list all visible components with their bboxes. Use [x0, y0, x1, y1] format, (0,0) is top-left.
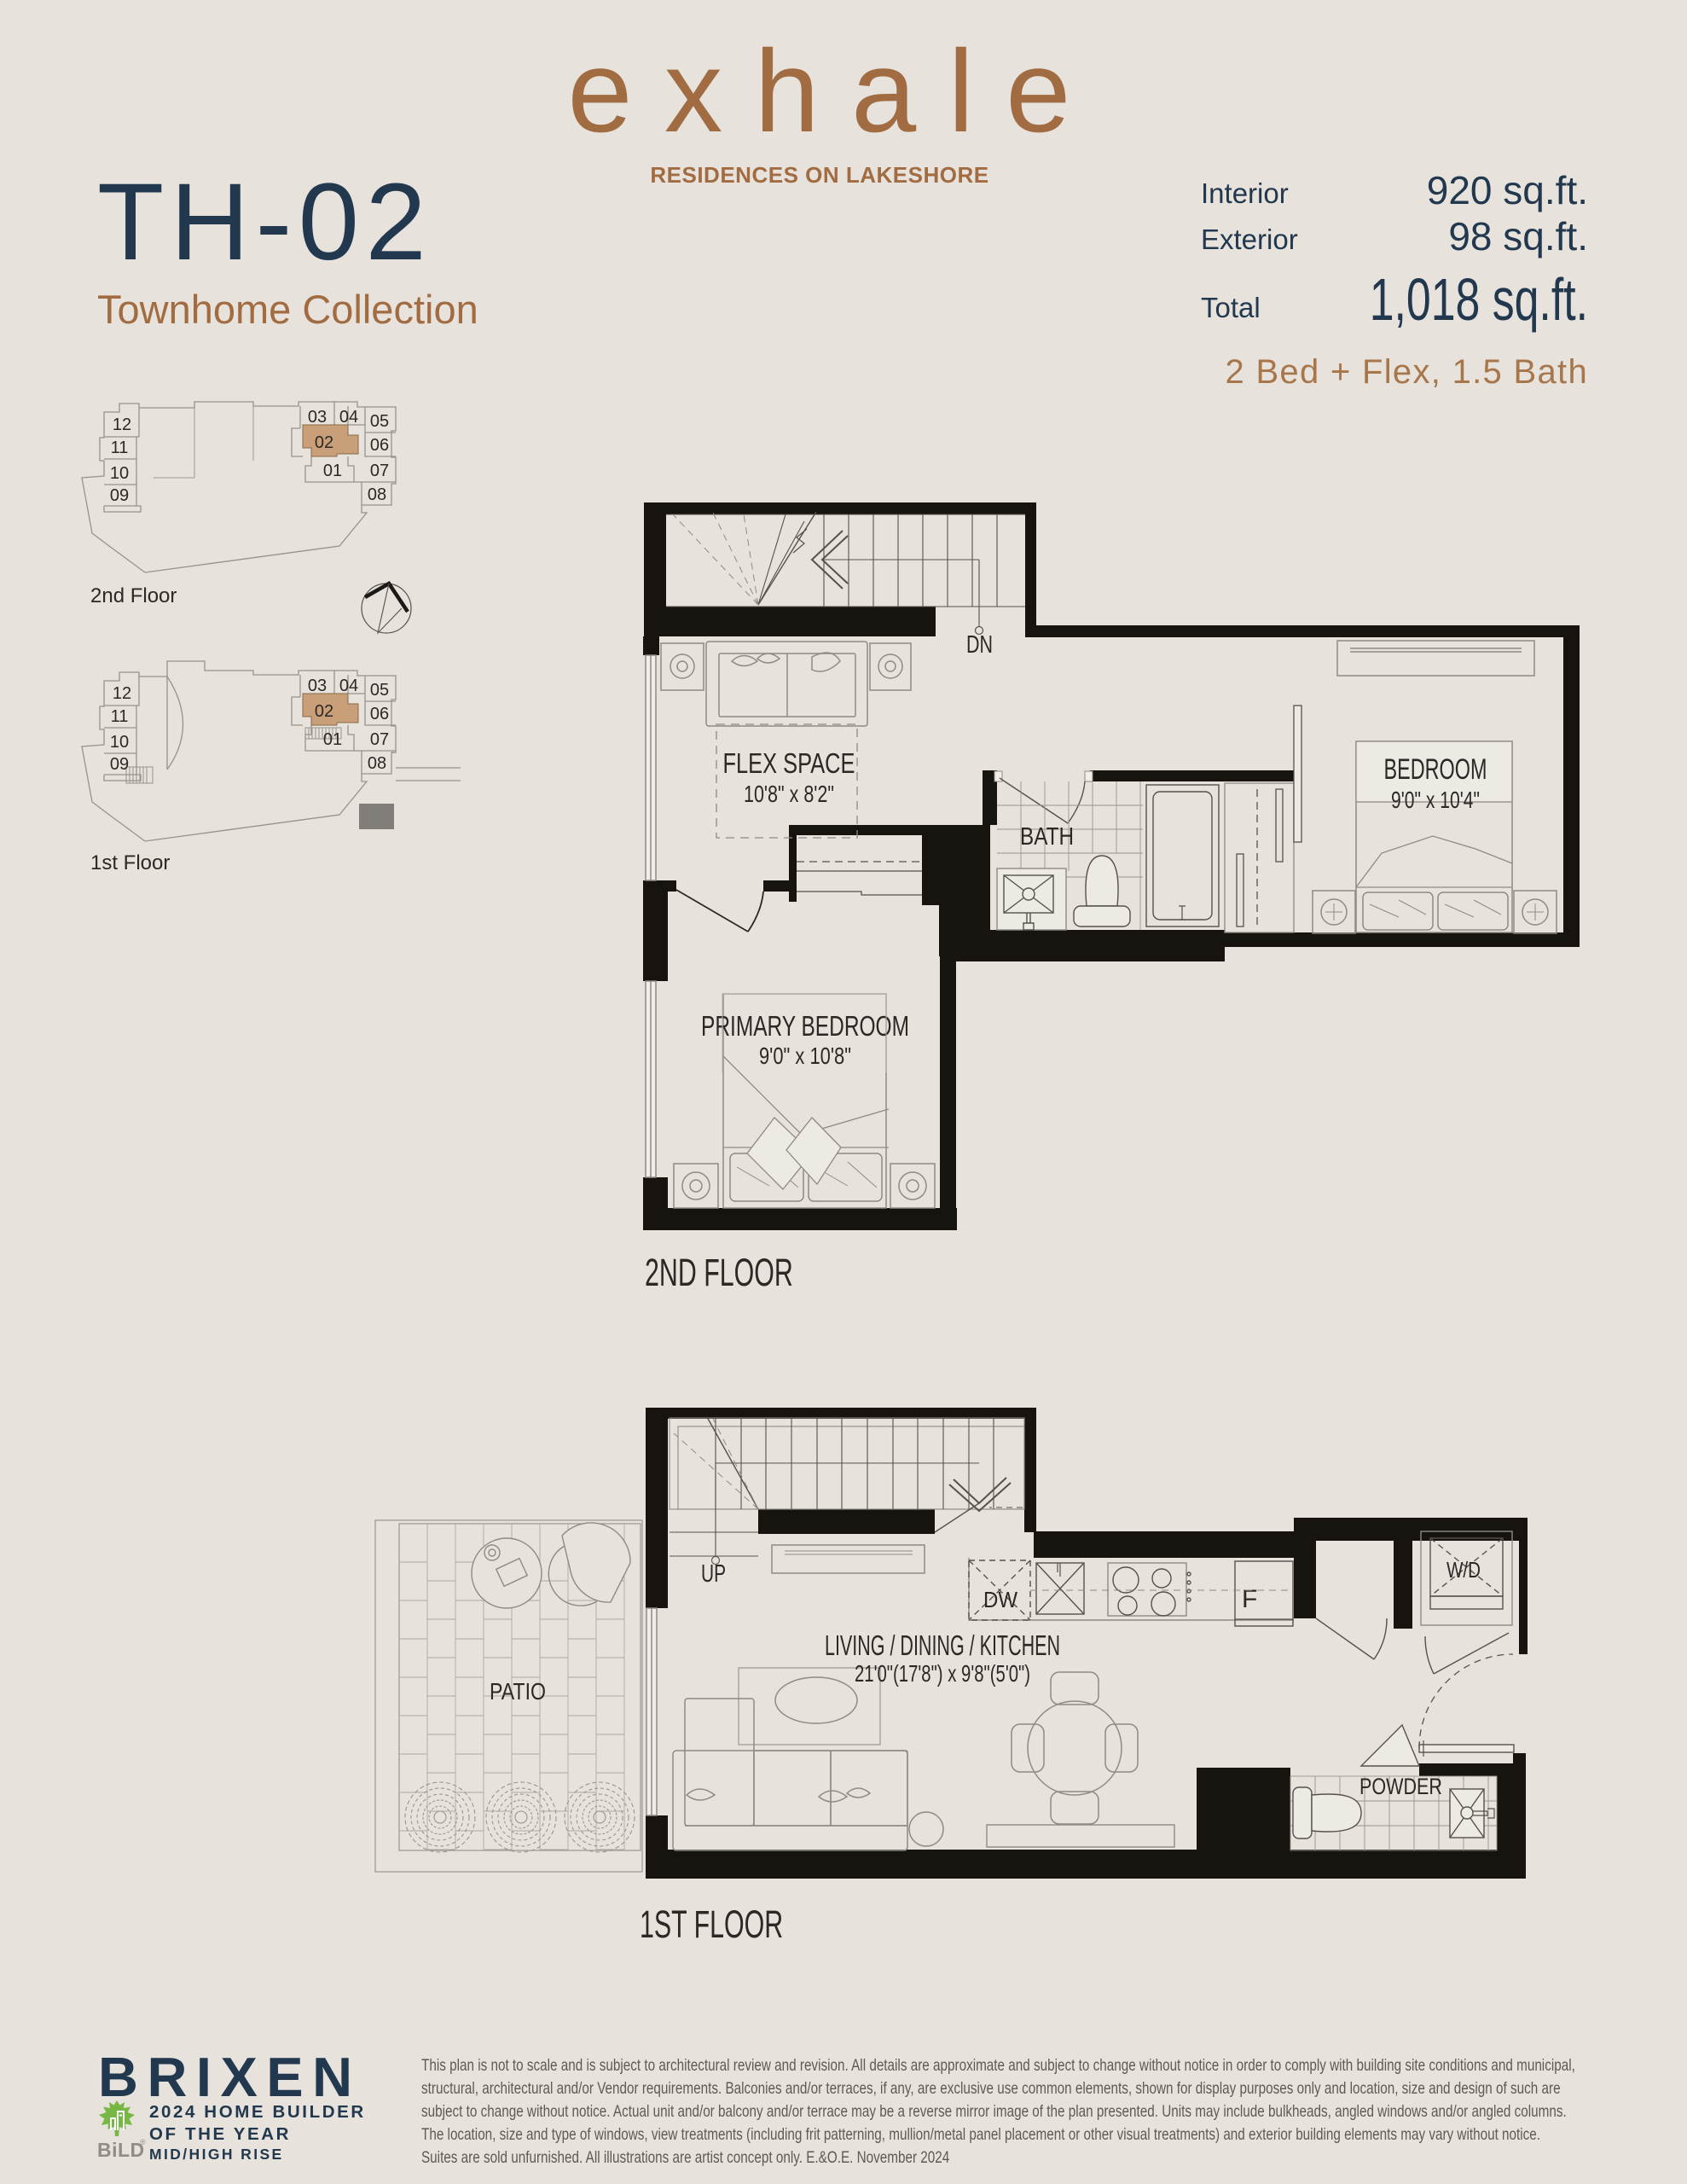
svg-text:POWDER: POWDER — [1359, 1774, 1442, 1799]
svg-text:03: 03 — [308, 677, 327, 695]
svg-text:05: 05 — [370, 412, 389, 431]
svg-text:04: 04 — [339, 408, 358, 427]
svg-text:10: 10 — [110, 733, 129, 752]
svg-text:21'0"(17'8") x 9'8"(5'0"): 21'0"(17'8") x 9'8"(5'0") — [855, 1660, 1030, 1687]
svg-text:LIVING / DINING / KITCHEN: LIVING / DINING / KITCHEN — [825, 1629, 1060, 1661]
svg-text:BiLD: BiLD — [97, 2139, 145, 2161]
svg-text:DN: DN — [966, 631, 993, 659]
svg-text:10'8" x 8'2": 10'8" x 8'2" — [744, 781, 834, 807]
svg-text:11: 11 — [111, 439, 129, 457]
svg-text:BATH: BATH — [1020, 823, 1074, 851]
svg-text:F: F — [1242, 1585, 1257, 1613]
svg-text:9'0" x 10'4": 9'0" x 10'4" — [1391, 787, 1480, 813]
svg-text:®: ® — [140, 2138, 146, 2146]
svg-text:09: 09 — [110, 755, 129, 774]
svg-text:W/D: W/D — [1446, 1557, 1481, 1583]
svg-text:07: 07 — [370, 730, 389, 749]
svg-text:FLEX SPACE: FLEX SPACE — [723, 747, 855, 779]
svg-text:08: 08 — [368, 485, 386, 504]
svg-text:10: 10 — [110, 464, 129, 483]
svg-text:01: 01 — [323, 730, 342, 749]
svg-text:PRIMARY BEDROOM: PRIMARY BEDROOM — [701, 1010, 909, 1042]
svg-text:11: 11 — [111, 707, 129, 726]
svg-text:05: 05 — [370, 681, 389, 700]
svg-text:PATIO: PATIO — [490, 1678, 546, 1705]
svg-text:12: 12 — [113, 684, 131, 703]
svg-text:04: 04 — [339, 677, 358, 695]
svg-text:01: 01 — [323, 462, 342, 480]
svg-text:UP: UP — [701, 1560, 726, 1588]
svg-text:07: 07 — [370, 462, 389, 480]
svg-text:9'0" x 10'8": 9'0" x 10'8" — [759, 1043, 851, 1069]
svg-text:06: 06 — [370, 436, 389, 455]
svg-text:06: 06 — [370, 705, 389, 723]
svg-text:08: 08 — [368, 754, 386, 773]
svg-text:03: 03 — [308, 408, 327, 427]
svg-text:DW: DW — [983, 1587, 1017, 1612]
svg-text:02: 02 — [315, 702, 333, 721]
svg-text:12: 12 — [113, 415, 131, 434]
svg-text:09: 09 — [110, 486, 129, 505]
svg-text:02: 02 — [315, 433, 333, 452]
svg-text:BEDROOM: BEDROOM — [1384, 753, 1487, 786]
